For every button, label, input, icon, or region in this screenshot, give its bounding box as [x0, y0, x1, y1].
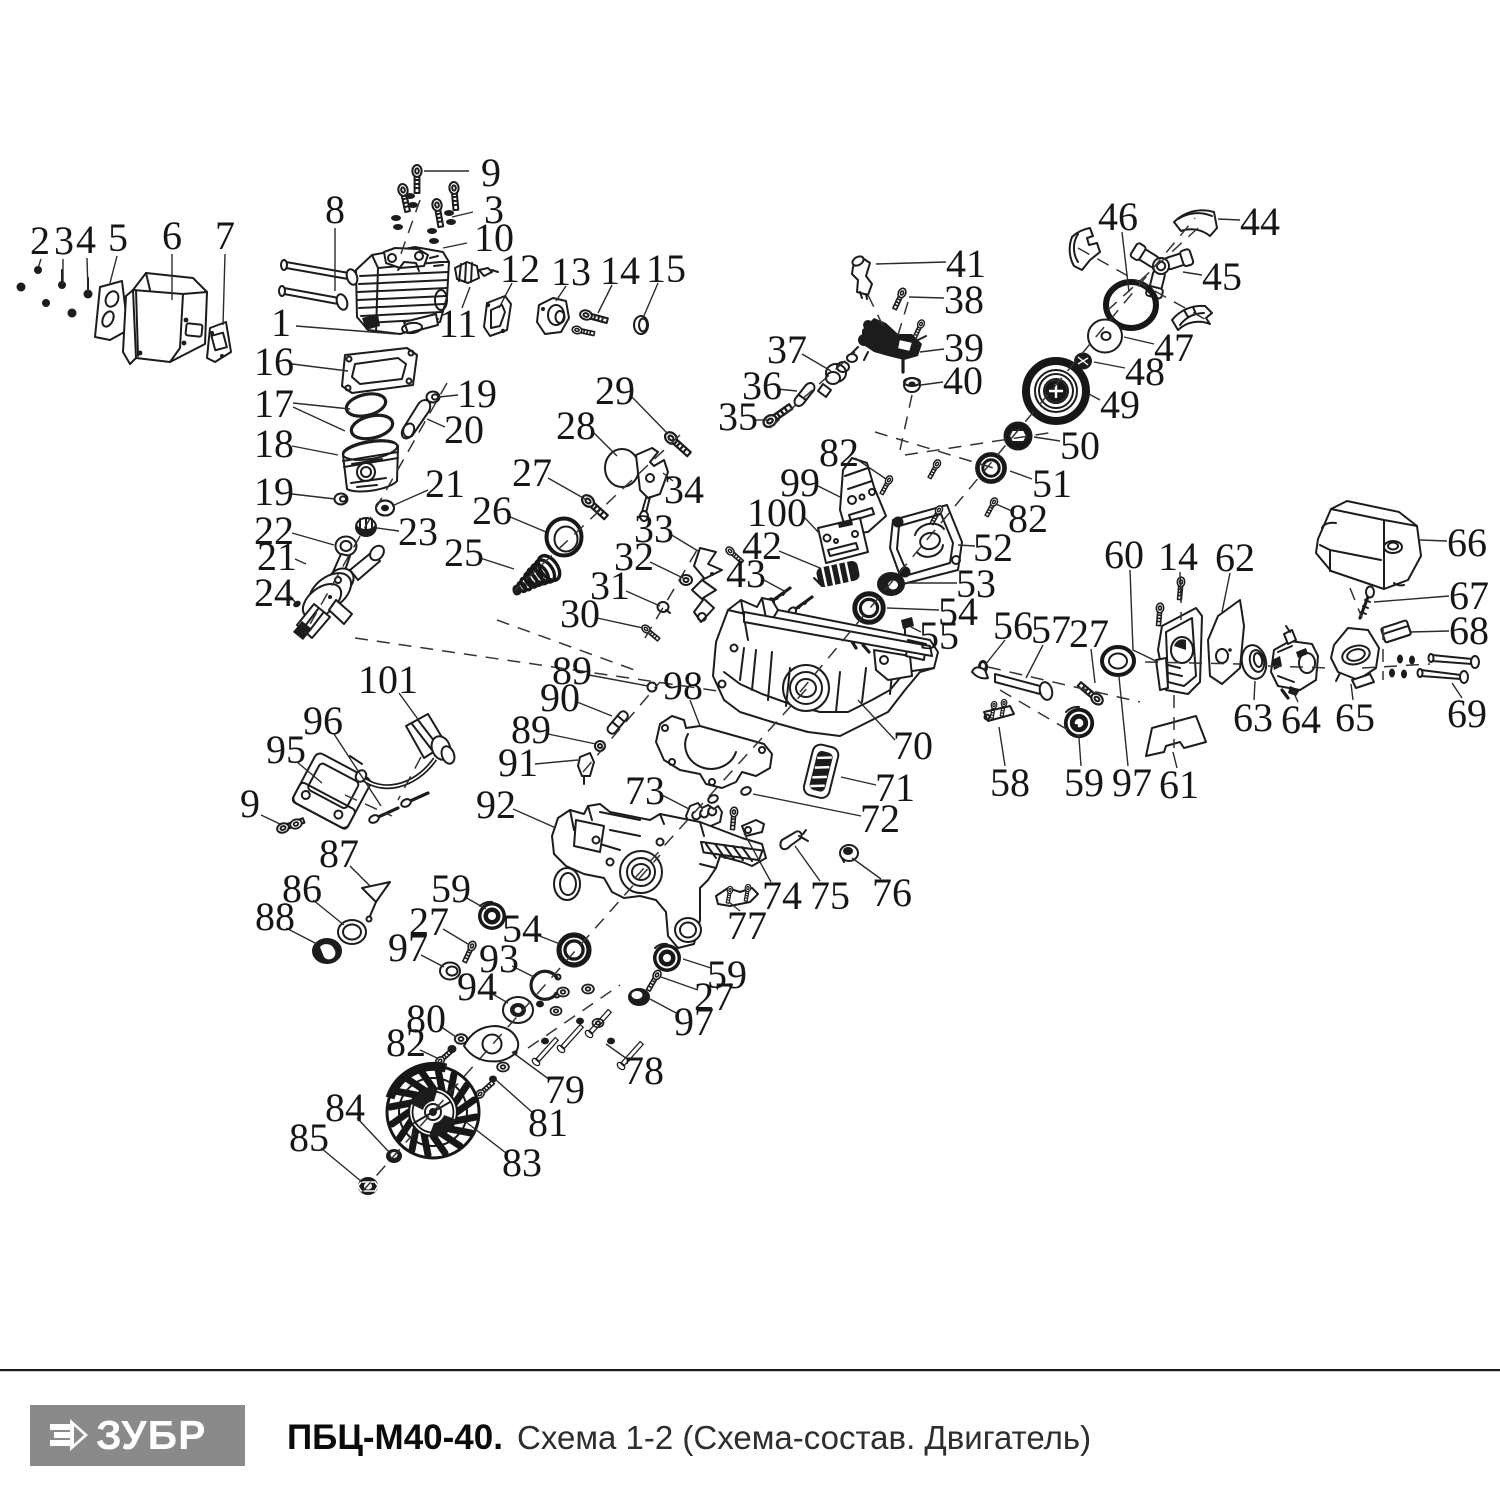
- svg-text:17: 17: [254, 381, 294, 426]
- svg-text:11: 11: [439, 301, 478, 346]
- svg-text:21: 21: [425, 461, 465, 506]
- svg-text:91: 91: [498, 740, 538, 785]
- svg-text:66: 66: [1447, 520, 1487, 565]
- svg-text:87: 87: [319, 831, 359, 876]
- svg-text:14: 14: [600, 248, 640, 293]
- svg-text:56: 56: [993, 603, 1033, 648]
- svg-text:54: 54: [502, 906, 542, 951]
- svg-text:79: 79: [545, 1067, 585, 1112]
- svg-text:84: 84: [325, 1085, 365, 1130]
- svg-text:44: 44: [1240, 199, 1280, 244]
- svg-text:98: 98: [663, 663, 703, 708]
- svg-text:27: 27: [1069, 611, 1109, 656]
- svg-text:57: 57: [1031, 607, 1071, 652]
- svg-text:73: 73: [625, 768, 665, 813]
- svg-text:97: 97: [388, 925, 428, 970]
- svg-text:70: 70: [893, 723, 933, 768]
- svg-text:58: 58: [990, 760, 1030, 805]
- svg-text:55: 55: [919, 613, 959, 658]
- svg-text:72: 72: [860, 796, 900, 841]
- svg-text:83: 83: [502, 1140, 542, 1185]
- svg-text:2: 2: [30, 218, 50, 263]
- svg-text:ЗУБР: ЗУБР: [96, 1412, 206, 1458]
- svg-text:24: 24: [254, 570, 294, 615]
- svg-text:77: 77: [727, 903, 767, 948]
- svg-text:4: 4: [76, 217, 96, 262]
- svg-text:69: 69: [1447, 691, 1487, 736]
- svg-text:45: 45: [1202, 254, 1242, 299]
- svg-text:49: 49: [1100, 382, 1140, 427]
- svg-text:92: 92: [476, 782, 516, 827]
- svg-text:8: 8: [325, 187, 345, 232]
- svg-text:75: 75: [810, 873, 850, 918]
- svg-text:27: 27: [512, 450, 552, 495]
- svg-text:29: 29: [595, 368, 635, 413]
- svg-text:61: 61: [1159, 762, 1199, 807]
- svg-text:76: 76: [872, 870, 912, 915]
- svg-text:28: 28: [556, 403, 596, 448]
- svg-text:12: 12: [500, 246, 540, 291]
- svg-text:97: 97: [1112, 760, 1152, 805]
- svg-text:68: 68: [1449, 608, 1489, 653]
- svg-text:40: 40: [943, 358, 983, 403]
- svg-text:94: 94: [457, 964, 497, 1009]
- svg-text:Схема 1-2 (Схема-состав. Двига: Схема 1-2 (Схема-состав. Двигатель): [517, 1419, 1091, 1456]
- svg-text:14: 14: [1158, 534, 1198, 579]
- svg-text:38: 38: [944, 277, 984, 322]
- svg-text:82: 82: [386, 1020, 426, 1065]
- svg-text:26: 26: [472, 488, 512, 533]
- svg-text:23: 23: [398, 509, 438, 554]
- svg-text:5: 5: [108, 215, 128, 260]
- svg-text:82: 82: [819, 430, 859, 475]
- svg-text:6: 6: [162, 213, 182, 258]
- svg-text:97: 97: [674, 999, 714, 1044]
- svg-text:37: 37: [767, 327, 807, 372]
- svg-text:43: 43: [726, 551, 766, 596]
- svg-text:16: 16: [254, 339, 294, 384]
- svg-text:60: 60: [1104, 532, 1144, 577]
- svg-text:13: 13: [551, 249, 591, 294]
- svg-text:46: 46: [1098, 194, 1138, 239]
- svg-text:101: 101: [358, 657, 418, 702]
- svg-text:30: 30: [560, 591, 600, 636]
- svg-text:88: 88: [255, 894, 295, 939]
- svg-text:74: 74: [762, 873, 802, 918]
- svg-text:51: 51: [1032, 461, 1072, 506]
- svg-text:95: 95: [266, 727, 306, 772]
- svg-text:ПБЦ-М40-40.: ПБЦ-М40-40.: [287, 1418, 503, 1457]
- svg-text:7: 7: [215, 213, 235, 258]
- svg-text:9: 9: [240, 781, 260, 826]
- svg-text:85: 85: [289, 1115, 329, 1160]
- svg-text:62: 62: [1215, 535, 1255, 580]
- svg-text:96: 96: [303, 698, 343, 743]
- svg-text:64: 64: [1281, 697, 1321, 742]
- svg-text:15: 15: [646, 246, 686, 291]
- svg-text:20: 20: [444, 407, 484, 452]
- svg-text:25: 25: [444, 530, 484, 575]
- svg-text:65: 65: [1335, 695, 1375, 740]
- svg-text:18: 18: [254, 421, 294, 466]
- svg-text:63: 63: [1233, 695, 1273, 740]
- svg-text:59: 59: [1064, 760, 1104, 805]
- svg-text:3: 3: [54, 218, 74, 263]
- svg-text:78: 78: [624, 1048, 664, 1093]
